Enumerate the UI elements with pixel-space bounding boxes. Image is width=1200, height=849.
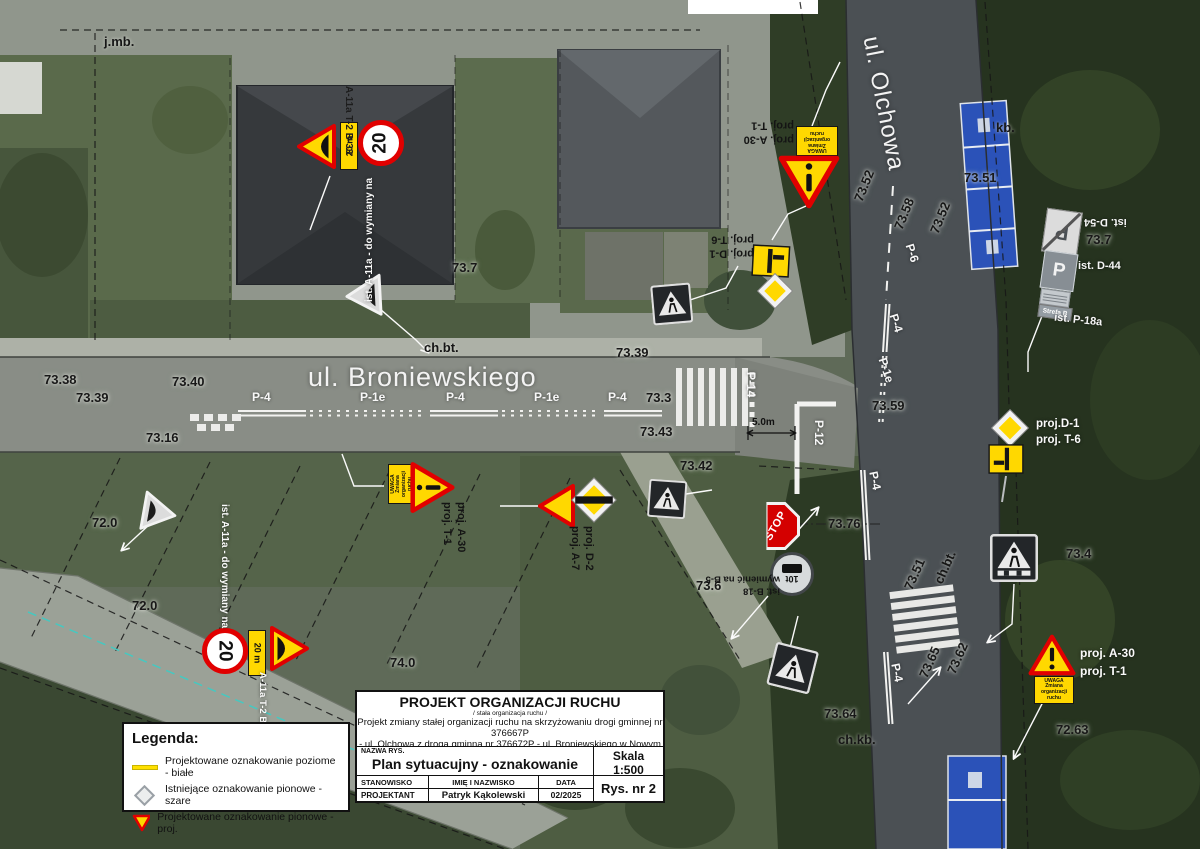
legend-item-label: Projektowane oznakowanie pionowe - proj. — [157, 811, 340, 835]
project-description-line1: Projekt zmiany stałej organizacji ruchu … — [357, 718, 663, 740]
column-header-date: DATA — [538, 775, 593, 788]
a11a-speed-bump-sign — [297, 124, 342, 170]
street-label-broniewskiego: ul. Broniewskiego — [308, 362, 537, 393]
legend-item-projected-vertical: Projektowane oznakowanie pionowe - proj. — [132, 811, 340, 835]
t6-plate-sign — [988, 444, 1024, 479]
legend-item-label: Projektowane oznakowanie poziome - białe — [165, 755, 340, 779]
a30-right-label: proj. A-30 — [1080, 646, 1135, 660]
d2-end-priority-sign — [570, 476, 618, 529]
d1-priority-sign — [756, 272, 794, 315]
uwaga-plate: UWAGA Zmiana organizacji ruchu — [1034, 676, 1074, 704]
drawing-name-label: NAZWA RYS. — [361, 748, 589, 755]
d1-right-label: proj.D-1 — [1036, 418, 1079, 430]
drawing-name: Plan sytuacujny - oznakowanie stałe — [361, 756, 589, 775]
column-header-name: IMIĘ I NAZWISKO — [428, 775, 538, 788]
label-line: ist. B-18 — [692, 584, 780, 596]
legend-box: Legenda: Projektowane oznakowanie poziom… — [122, 722, 350, 812]
a11a-speed-bump-sign — [265, 626, 310, 672]
a30-t1-mid-labels: proj. A-30 proj. T-1 — [439, 502, 468, 552]
ist-a11a-bottom-note: ist. A-11a - do wymiany na — [219, 504, 230, 628]
legend-item-horizontal-marking: Projektowane oznakowanie poziome - białe — [132, 755, 340, 779]
speed-limit-value: 20 — [370, 132, 392, 153]
d1-t6-top-labels: proj. D-1 proj. T-6 — [696, 232, 754, 261]
project-title: PROJEKT ORGANIZACJI RUCHU — [357, 694, 663, 710]
label-line: proj. D-1 — [696, 246, 754, 260]
label-line: proj. T-1 — [439, 502, 453, 552]
parking-glyph: P — [1051, 259, 1067, 283]
scale-label: Skala — [594, 749, 663, 763]
label-line: proj. A-7 — [567, 526, 581, 571]
label-line: wymienić na B-5 — [692, 572, 780, 584]
a30-warning-sign — [778, 150, 840, 209]
top-left-sign-labels: A-11a T-2 B-33 — [343, 86, 354, 154]
yellow-triangle-icon — [132, 814, 150, 832]
a30-warning-sign — [1028, 634, 1076, 681]
existing-d6-crossing-sign — [990, 534, 1038, 587]
traffic-plan-canvas: 73.3873.3973.4073.1672.072.074.073.773.3… — [0, 0, 1200, 849]
scale-cell: Skala 1:500 — [593, 746, 663, 775]
legend-item-existing-vertical: Istniejące oznakowanie pionowe - szare — [132, 783, 340, 807]
ist-d44-label: ist. D-44 — [1078, 260, 1121, 272]
title-block: PROJEKT ORGANIZACJI RUCHU / stała organi… — [355, 690, 665, 803]
existing-sign — [650, 282, 694, 330]
slash-mark — [1042, 213, 1082, 251]
b33-speed-limit-sign: 20 — [202, 628, 248, 674]
existing-sign — [647, 479, 688, 525]
dimension-label: 5.0m — [752, 417, 775, 428]
t1-right-label: proj. T-1 — [1080, 664, 1127, 678]
legend-title: Legenda: — [132, 730, 340, 747]
label-line: proj. T-1 — [730, 118, 794, 132]
t6-right-label: proj. T-6 — [1036, 434, 1081, 446]
label-line: proj. A-30 — [454, 502, 468, 552]
existing-d44-sign: P — [1040, 250, 1079, 292]
designer-name: Patryk Kąkolewski — [428, 788, 538, 801]
d2-a7-labels: proj. D-2 proj. A-7 — [567, 526, 596, 571]
t2-distance-plate: 20 m — [248, 630, 266, 676]
truck-icon — [782, 565, 802, 574]
drawing-number: Rys. nr 2 — [593, 775, 663, 801]
speed-limit-value: 20 — [214, 640, 236, 661]
column-header-role: STANOWISKO — [357, 775, 428, 788]
drawing-name-cell: NAZWA RYS. Plan sytuacujny - oznakowanie… — [357, 746, 593, 775]
b18-note-labels: ist. B-18 wymienić na B-5 — [692, 572, 780, 597]
label-line: proj. D-2 — [582, 526, 596, 571]
a30-t1-top-labels: proj. A-30 proj. T-1 — [730, 118, 794, 147]
gray-diamond-icon — [134, 784, 155, 805]
label-line: proj. T-6 — [696, 232, 754, 246]
stop-text: STOP — [763, 509, 789, 543]
date-cell: 02/2025 — [538, 788, 593, 801]
weight-limit-text: 10t — [786, 575, 799, 584]
ist-a11a-top-note: ist. A-11a - do wymiany na — [364, 178, 375, 302]
ist-d54-label: ist. D-54 — [1084, 216, 1127, 228]
title-block-header: PROJEKT ORGANIZACJI RUCHU / stała organi… — [357, 692, 663, 746]
existing-a11a-sign — [133, 488, 181, 536]
scale-value: 1:500 — [594, 763, 663, 775]
yellow-line-icon — [132, 765, 158, 770]
legend-item-label: Istniejące oznakowanie pionowe - szare — [165, 783, 340, 807]
label-line: proj. A-30 — [730, 132, 794, 146]
t2-plate-text: 20 m — [252, 643, 262, 664]
project-subtitle: / stała organizacja ruchu / — [357, 710, 663, 717]
role-cell: PROJEKTANT — [357, 788, 428, 801]
b33-speed-limit-sign: 20 — [358, 120, 404, 166]
existing-d54-sign: P — [1041, 208, 1083, 257]
